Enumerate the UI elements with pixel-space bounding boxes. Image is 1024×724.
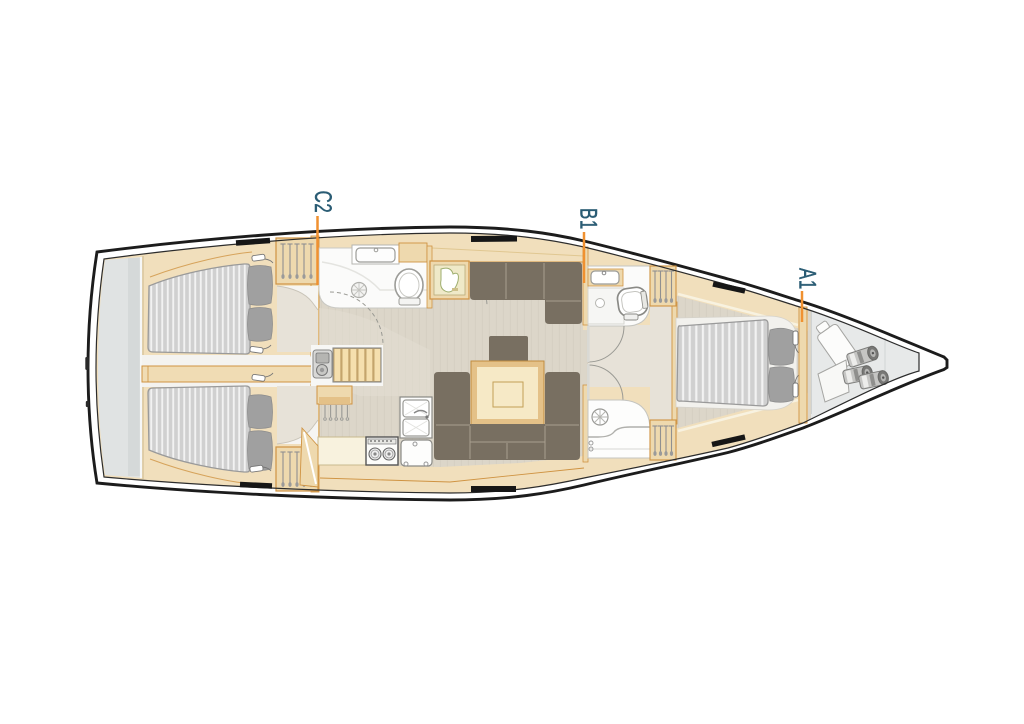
svg-text:B1: B1 [575, 208, 602, 230]
svg-text:A1: A1 [794, 268, 821, 290]
svg-text:C2: C2 [309, 191, 336, 214]
